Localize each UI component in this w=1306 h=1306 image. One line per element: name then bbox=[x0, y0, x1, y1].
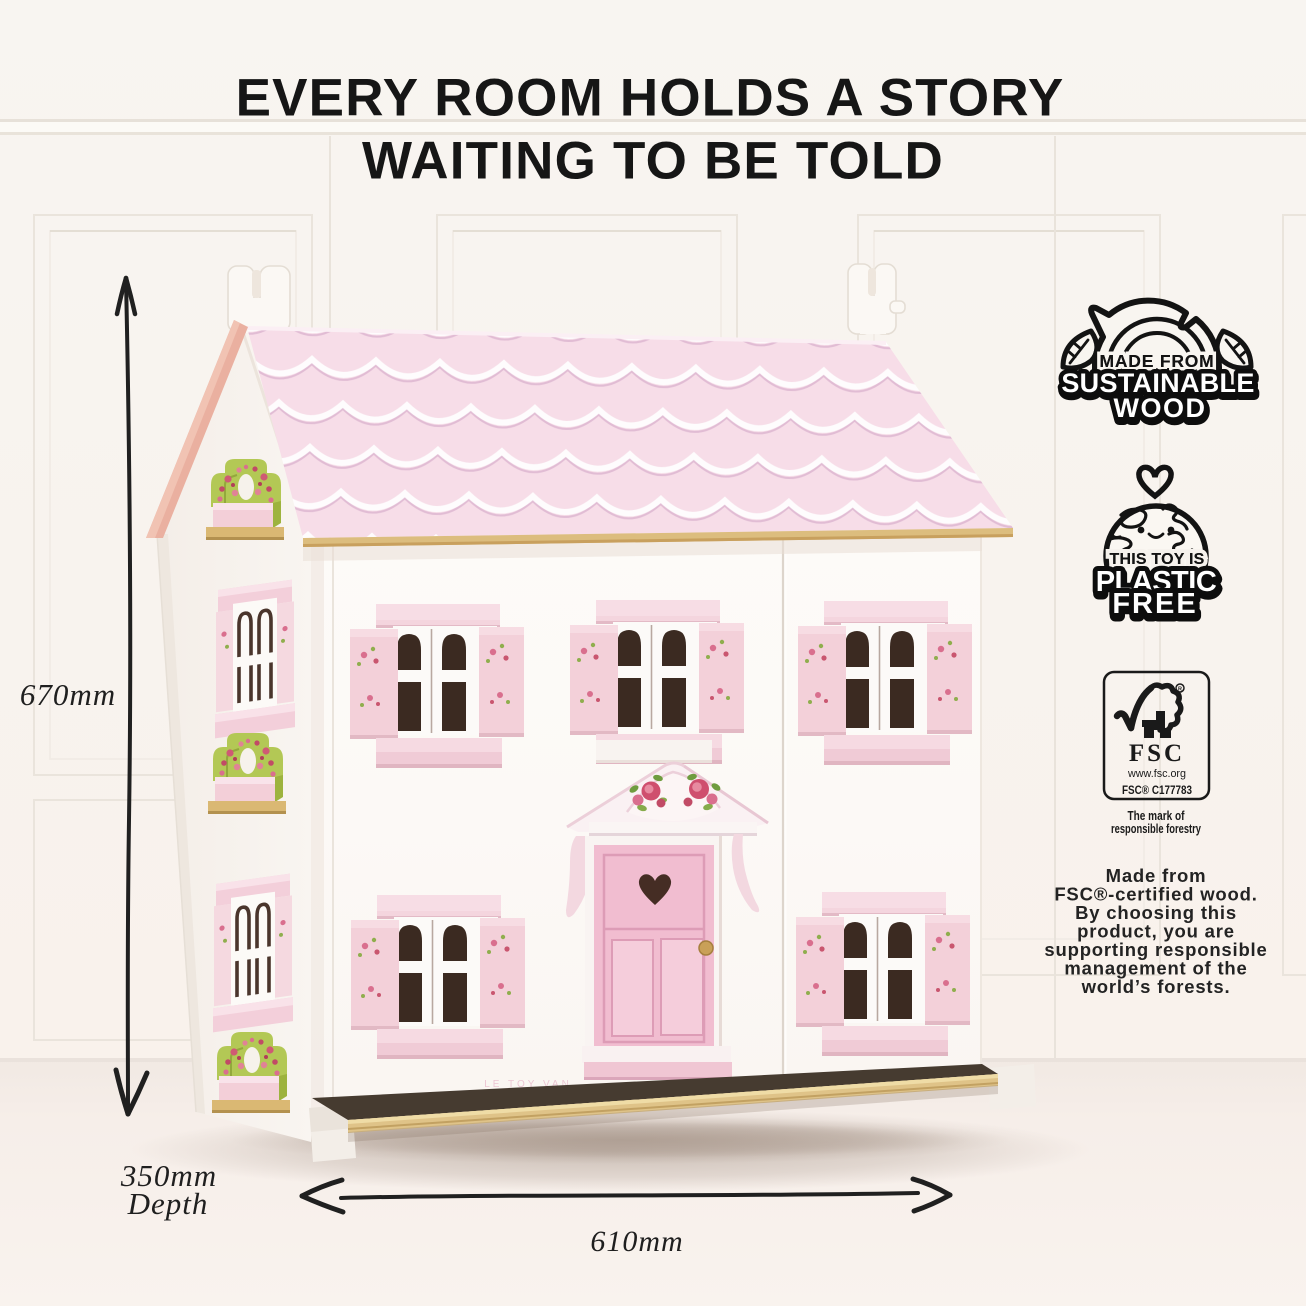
svg-text:The mark of: The mark of bbox=[1128, 809, 1186, 823]
svg-text:FSC: FSC bbox=[1129, 740, 1185, 767]
svg-text:WAITING TO BE TOLD: WAITING TO BE TOLD bbox=[362, 132, 944, 191]
svg-text:EVERY ROOM HOLDS A STORY: EVERY ROOM HOLDS A STORY bbox=[236, 69, 1065, 128]
svg-text:www.fsc.org: www.fsc.org bbox=[1127, 768, 1186, 780]
svg-text:R: R bbox=[1178, 687, 1182, 693]
svg-text:FREE: FREE bbox=[1112, 588, 1197, 620]
svg-text:Depth: Depth bbox=[127, 1186, 209, 1221]
svg-text:FSC® C177783: FSC® C177783 bbox=[1122, 785, 1192, 797]
svg-text:WOOD: WOOD bbox=[1114, 393, 1207, 423]
svg-text:world’s forests.: world’s forests. bbox=[1081, 976, 1231, 997]
svg-text:responsible forestry: responsible forestry bbox=[1111, 822, 1201, 836]
svg-text:670mm: 670mm bbox=[20, 677, 116, 712]
svg-text:610mm: 610mm bbox=[590, 1225, 683, 1258]
